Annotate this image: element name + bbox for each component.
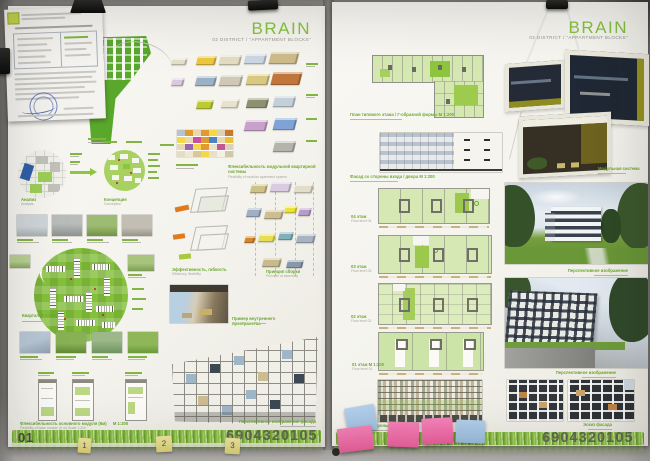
registration-form	[4, 6, 106, 121]
floor-04-label: 04 этаж Floor level 04	[351, 214, 371, 224]
floor-01-label: 01 этаж М 1:200 Floor level 01	[352, 362, 384, 372]
perspective-2-label: Перспективное изображение	[542, 370, 616, 375]
floor-plan-04	[378, 188, 490, 224]
reference-photo	[128, 332, 158, 353]
board2-entry-code: 6904320105	[542, 430, 634, 446]
facade-closeup-photo	[507, 380, 563, 421]
board1-number: 01	[18, 430, 33, 445]
push-pin-icon	[0, 48, 10, 74]
sticky-note-pink	[388, 421, 420, 447]
push-pin-icon	[70, 0, 106, 13]
entrance-facade-label: Фасад со стороны входа / двора М 1:200	[350, 174, 460, 179]
typical-plan-label: План типового этажа / Г-образной формы М…	[350, 112, 460, 117]
module-system-label: Модульная система	[598, 166, 642, 171]
reference-photo	[92, 332, 122, 353]
interior-render	[170, 285, 228, 323]
street-facade-elevation	[378, 380, 482, 422]
board2-subtitle: 02 DISTRICT / "APPARTMENT BLOCKS"	[462, 35, 628, 40]
form-table	[13, 31, 98, 70]
context-photo	[52, 215, 82, 236]
form-logo	[7, 12, 19, 24]
facade-perspective-render	[172, 334, 318, 428]
sticky-note-pink	[421, 417, 453, 445]
board1-title: BRAIN	[158, 19, 311, 39]
reference-photo	[20, 332, 50, 353]
arrow-head-icon	[90, 168, 97, 176]
apartment-system-label: Флексибельность модульной квартирной сис…	[228, 164, 320, 179]
push-pin-icon	[546, 0, 568, 9]
facade-perspective-label: Перспективное изображение фасада	[236, 419, 316, 424]
sticky-tab-2: 2	[156, 436, 173, 453]
module-system-render	[505, 52, 645, 172]
site-photo	[128, 255, 154, 271]
interior-example-label: Пример внутреннего пространства	[232, 316, 292, 327]
board1-subtitle: 02 DISTRICT / "APPARTMENT BLOCKS"	[146, 37, 311, 42]
analysis-circle	[18, 150, 66, 198]
perspective-1-label: Перспективное изображение	[554, 268, 628, 273]
typical-floor-plan	[372, 55, 482, 117]
sticky-note-pink	[337, 425, 375, 453]
push-pin-icon	[248, 0, 278, 11]
unit-plan	[38, 379, 57, 421]
floor-plan-02	[378, 283, 492, 325]
floor-plan-01	[378, 332, 484, 371]
assembly-axon	[243, 182, 321, 276]
facade-sketch-label: Эскиз фасада	[562, 422, 612, 427]
site-photo	[10, 255, 30, 268]
reference-photo	[56, 332, 86, 353]
floor-plan-03	[378, 235, 492, 274]
district-plan-label: Квартал М 1:1000	[22, 313, 58, 318]
apartment-mix-plan	[177, 130, 233, 157]
flexibility-axon	[173, 182, 235, 266]
sticky-note-blue	[456, 420, 486, 444]
floor-03-label: 03 этаж Floor level 03	[351, 264, 371, 274]
photo-scene: BRAIN 02 DISTRICT / "APPARTMENT BLOCKS"	[0, 0, 650, 461]
context-photo	[17, 215, 47, 236]
context-photo	[122, 215, 152, 236]
unit-plan	[125, 379, 147, 421]
entrance-facade-elevation	[380, 133, 502, 172]
unit-plan	[72, 379, 94, 421]
floor-02-label: 02 этаж Floor level 02	[351, 314, 371, 324]
assembly-label: Принцип сборки Principle of assembly	[266, 269, 300, 279]
perspective-render-1	[505, 183, 648, 264]
board-02: BRAIN 02 DISTRICT / "APPARTMENT BLOCKS" …	[332, 2, 648, 446]
perspective-render-2	[505, 278, 648, 368]
concept-label: Концепция Conception	[104, 197, 127, 207]
analysis-label: Анализ Analysis	[21, 197, 36, 207]
site-plan-circle	[34, 248, 128, 342]
context-photo	[87, 215, 117, 236]
arrow-bar	[70, 171, 90, 174]
concept-circle	[104, 150, 145, 191]
efficiency-label: Эффективность, гибкость Efficiency, flex…	[172, 267, 227, 277]
sticky-tab-3: 3	[225, 438, 241, 455]
sticky-tab-1: 1	[77, 438, 91, 454]
facade-closeup-photo	[568, 380, 634, 421]
